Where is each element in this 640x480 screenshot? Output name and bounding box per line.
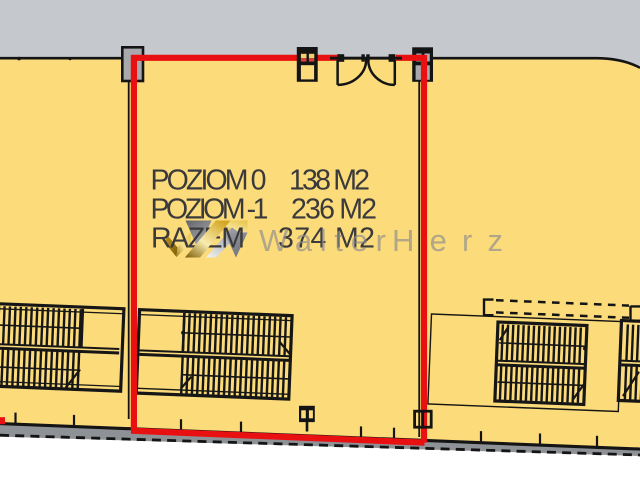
- svg-text:138 M2: 138 M2: [289, 165, 370, 197]
- svg-text:236 M2: 236 M2: [291, 194, 377, 226]
- svg-text:POZIOM 0: POZIOM 0: [151, 165, 267, 197]
- svg-text:Walter: Walter: [259, 223, 386, 258]
- svg-text:POZIOM -1: POZIOM -1: [151, 194, 269, 226]
